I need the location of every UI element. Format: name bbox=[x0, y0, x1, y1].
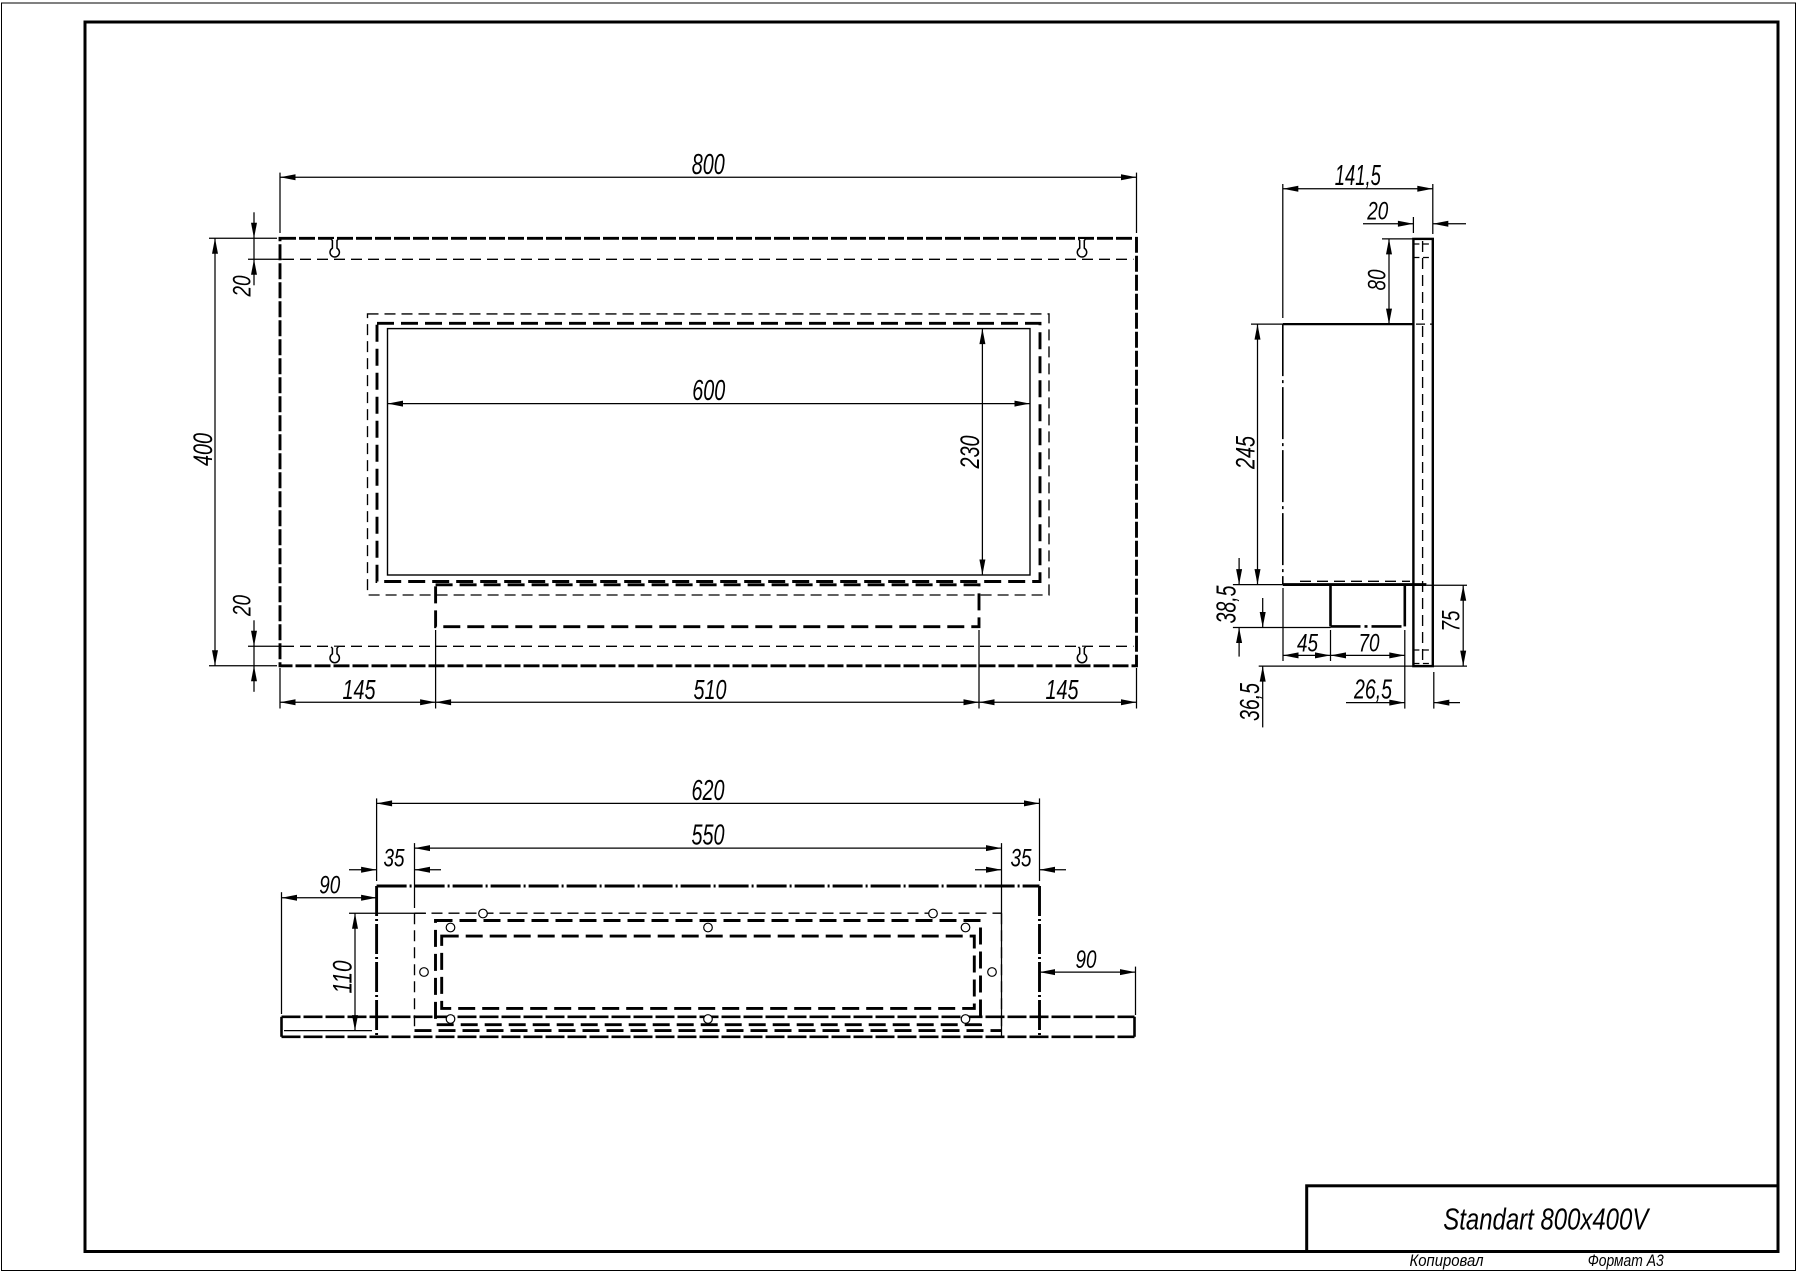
svg-text:110: 110 bbox=[328, 961, 358, 994]
svg-text:45: 45 bbox=[1297, 629, 1318, 657]
svg-text:230: 230 bbox=[955, 436, 985, 470]
svg-text:80: 80 bbox=[1364, 269, 1392, 290]
svg-text:20: 20 bbox=[1367, 197, 1389, 225]
svg-text:20: 20 bbox=[229, 595, 257, 617]
svg-text:26,5: 26,5 bbox=[1353, 674, 1392, 705]
svg-text:600: 600 bbox=[692, 375, 725, 407]
svg-text:Копировал: Копировал bbox=[1410, 1251, 1484, 1270]
svg-text:36,5: 36,5 bbox=[1234, 683, 1265, 721]
svg-text:90: 90 bbox=[1076, 946, 1097, 974]
svg-text:38,5: 38,5 bbox=[1211, 585, 1242, 623]
svg-text:35: 35 bbox=[1011, 845, 1032, 873]
svg-text:145: 145 bbox=[1046, 674, 1079, 705]
svg-text:800: 800 bbox=[692, 149, 725, 181]
svg-text:Формат А3: Формат А3 bbox=[1588, 1251, 1664, 1270]
svg-text:90: 90 bbox=[319, 872, 340, 900]
svg-text:620: 620 bbox=[692, 775, 725, 807]
svg-text:20: 20 bbox=[229, 275, 257, 297]
svg-text:245: 245 bbox=[1231, 435, 1261, 469]
svg-text:550: 550 bbox=[692, 820, 725, 852]
svg-text:141,5: 141,5 bbox=[1335, 160, 1382, 192]
svg-text:35: 35 bbox=[384, 845, 405, 873]
svg-text:510: 510 bbox=[694, 674, 727, 705]
svg-text:400: 400 bbox=[188, 433, 218, 466]
svg-text:145: 145 bbox=[343, 674, 376, 705]
svg-text:70: 70 bbox=[1359, 629, 1380, 657]
svg-text:Standart 800x400V: Standart 800x400V bbox=[1443, 1202, 1651, 1237]
svg-text:75: 75 bbox=[1438, 610, 1466, 631]
